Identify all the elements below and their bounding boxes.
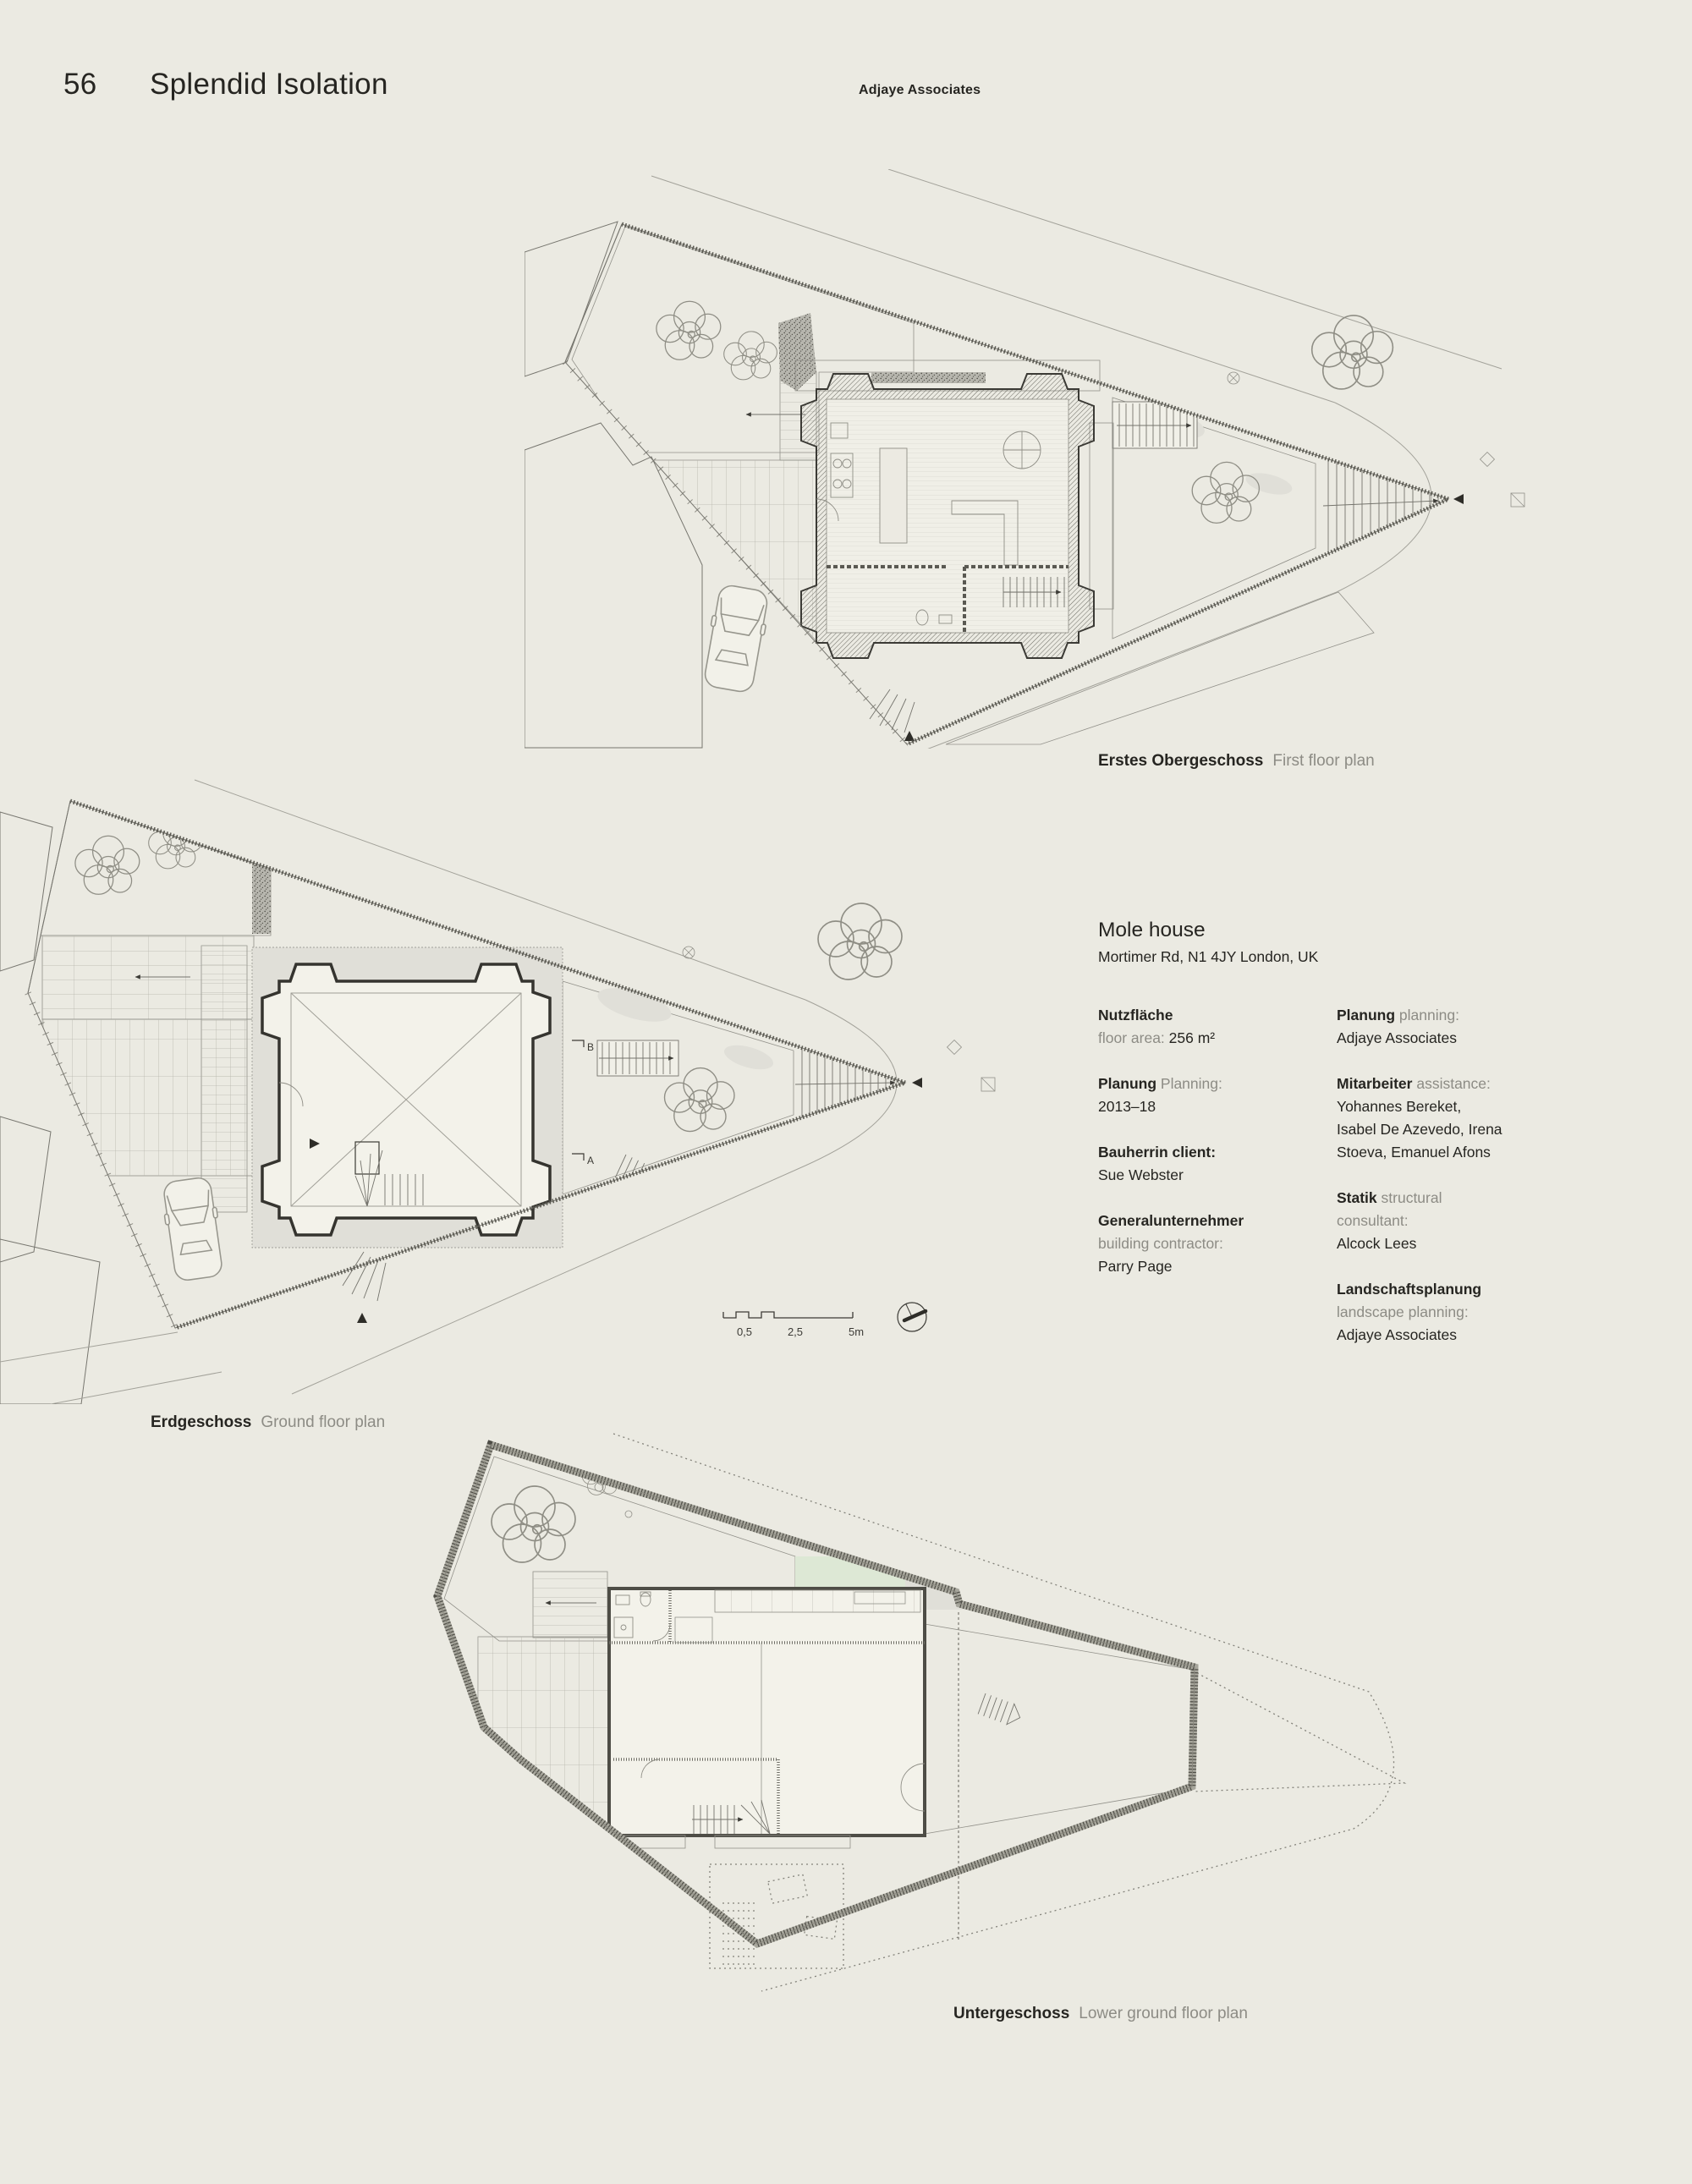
page-number: 56 — [63, 68, 97, 102]
project-field: Landschaftsplanunglandscape planning:Adj… — [1337, 1278, 1607, 1347]
section-marker-b: B — [572, 1040, 594, 1053]
caption-en: First floor plan — [1272, 752, 1374, 770]
kerb-cut — [252, 859, 271, 934]
exterior-stairs — [978, 1693, 1024, 1728]
project-field: Nutzflächefloor area: 256 m² — [1098, 1004, 1337, 1050]
caption-ground-floor: ErdgeschossGround floor plan — [151, 1413, 385, 1432]
direction-marker-icon — [1453, 494, 1464, 504]
caption-de: Erdgeschoss — [151, 1413, 251, 1431]
project-field: Mitarbeiter assistance:Yohannes Bereket,… — [1337, 1073, 1607, 1164]
first-floor-plan — [525, 169, 1531, 749]
garden-stairs — [1112, 402, 1197, 448]
house-footprint — [795, 360, 1113, 741]
project-column-1: Nutzflächefloor area: 256 m²Planung Plan… — [1098, 1004, 1337, 1369]
project-field: Bauherrin client:Sue Webster — [1098, 1141, 1337, 1187]
entry-marker-icon — [357, 1313, 367, 1323]
apex-ramp — [1323, 459, 1438, 553]
page-title: Splendid Isolation — [150, 68, 388, 102]
svg-text:5m: 5m — [849, 1325, 864, 1338]
road-markers — [683, 947, 995, 1091]
caption-de: Untergeschoss — [953, 2005, 1069, 2022]
project-column-2: Planung planning:Adjaye AssociatesMitarb… — [1337, 1004, 1607, 1369]
direction-marker-icon — [912, 1078, 922, 1088]
lower-ground-floor-plan — [406, 1429, 1438, 1996]
entry-steps — [870, 689, 915, 733]
project-field: Generalunternehmerbuilding contractor:Pa… — [1098, 1210, 1337, 1278]
tree-icon — [75, 836, 140, 894]
caption-first-floor: Erstes ObergeschossFirst floor plan — [1098, 752, 1375, 771]
caption-en: Ground floor plan — [261, 1413, 385, 1431]
caption-en: Lower ground floor plan — [1079, 2005, 1248, 2022]
book-page: 56 Splendid Isolation Adjaye Associates — [0, 0, 1692, 2184]
scale-bar: 0,5 2,5 5m — [711, 1290, 948, 1349]
project-field: Planung Planning:2013–18 — [1098, 1073, 1337, 1118]
svg-text:A: A — [587, 1155, 594, 1166]
car-icon — [700, 584, 772, 694]
tree-icon — [665, 1068, 735, 1132]
project-address: Mortimer Rd, N1 4JY London, UK — [1098, 946, 1640, 968]
tree-icon — [1192, 462, 1259, 523]
svg-text:0,5: 0,5 — [737, 1325, 752, 1338]
garden-stairs — [597, 1040, 678, 1192]
house-footprint — [252, 947, 563, 1323]
tree-icon — [818, 903, 902, 980]
tree-icon — [1312, 316, 1393, 389]
survey-point-icon — [683, 947, 695, 958]
caption-de: Erstes Obergeschoss — [1098, 752, 1263, 770]
project-title: Mole house — [1098, 918, 1640, 943]
project-field: Planung planning:Adjaye Associates — [1337, 1004, 1607, 1050]
caption-lower-ground: UntergeschossLower ground floor plan — [953, 2005, 1248, 2023]
tree-icon — [492, 1486, 575, 1562]
entry-marker-icon — [904, 731, 915, 741]
apex-ramp — [795, 1048, 895, 1117]
tree-icon — [149, 820, 202, 869]
paved-terrace — [42, 936, 254, 1212]
project-columns: Nutzflächefloor area: 256 m²Planung Plan… — [1098, 1004, 1640, 1369]
north-arrow-icon — [898, 1303, 926, 1331]
survey-point-icon — [1228, 372, 1239, 384]
project-field: Statik structuralconsultant:Alcock Lees — [1337, 1187, 1607, 1255]
svg-text:2,5: 2,5 — [788, 1325, 803, 1338]
svg-text:B: B — [587, 1041, 594, 1053]
house-rooms — [609, 1589, 925, 1848]
paved-terrace — [478, 1572, 609, 1878]
tree-icon — [724, 332, 777, 380]
running-header: Adjaye Associates — [859, 83, 981, 98]
tree-icon — [656, 301, 721, 359]
project-info: Mole house Mortimer Rd, N1 4JY London, U… — [1098, 918, 1640, 1369]
section-marker-a: A — [572, 1154, 594, 1166]
